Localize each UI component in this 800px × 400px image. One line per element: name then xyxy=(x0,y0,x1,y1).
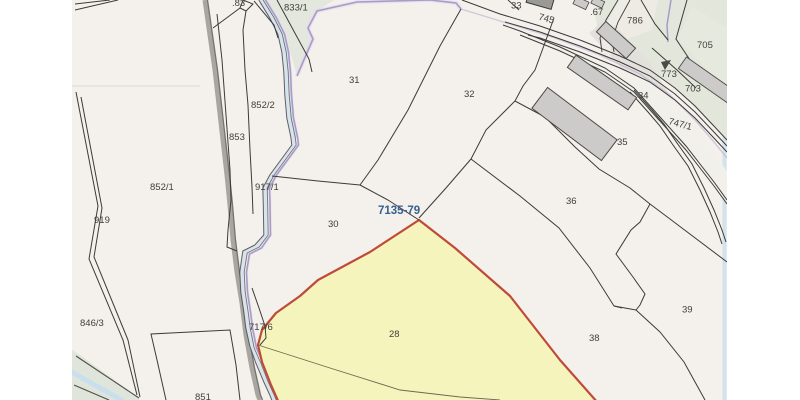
svg-text:36: 36 xyxy=(566,196,577,207)
svg-text:919: 919 xyxy=(94,215,110,226)
svg-text:852/2: 852/2 xyxy=(251,100,275,111)
svg-text:773: 773 xyxy=(661,69,677,80)
svg-text:30: 30 xyxy=(328,219,339,230)
svg-text:33: 33 xyxy=(511,1,522,12)
svg-text:851: 851 xyxy=(195,392,211,400)
svg-text:717/6: 717/6 xyxy=(249,322,273,333)
svg-text:705: 705 xyxy=(697,40,713,51)
svg-text:703: 703 xyxy=(685,84,701,95)
svg-text:786: 786 xyxy=(627,16,643,27)
svg-text:38: 38 xyxy=(589,333,600,344)
svg-text:.83: .83 xyxy=(232,0,245,9)
svg-text:34: 34 xyxy=(638,91,649,102)
svg-text:917/1: 917/1 xyxy=(255,182,279,193)
svg-text:35: 35 xyxy=(617,137,628,148)
svg-text:7135-79: 7135-79 xyxy=(378,205,420,217)
svg-text:853: 853 xyxy=(229,132,245,143)
svg-text:31: 31 xyxy=(349,75,360,86)
svg-text:39: 39 xyxy=(682,305,693,316)
svg-text:.67: .67 xyxy=(590,7,603,18)
svg-text:852/1: 852/1 xyxy=(150,182,174,193)
svg-text:846/3: 846/3 xyxy=(80,318,104,329)
svg-text:28: 28 xyxy=(389,329,400,340)
svg-text:32: 32 xyxy=(464,89,475,100)
svg-text:833/1: 833/1 xyxy=(284,3,308,14)
